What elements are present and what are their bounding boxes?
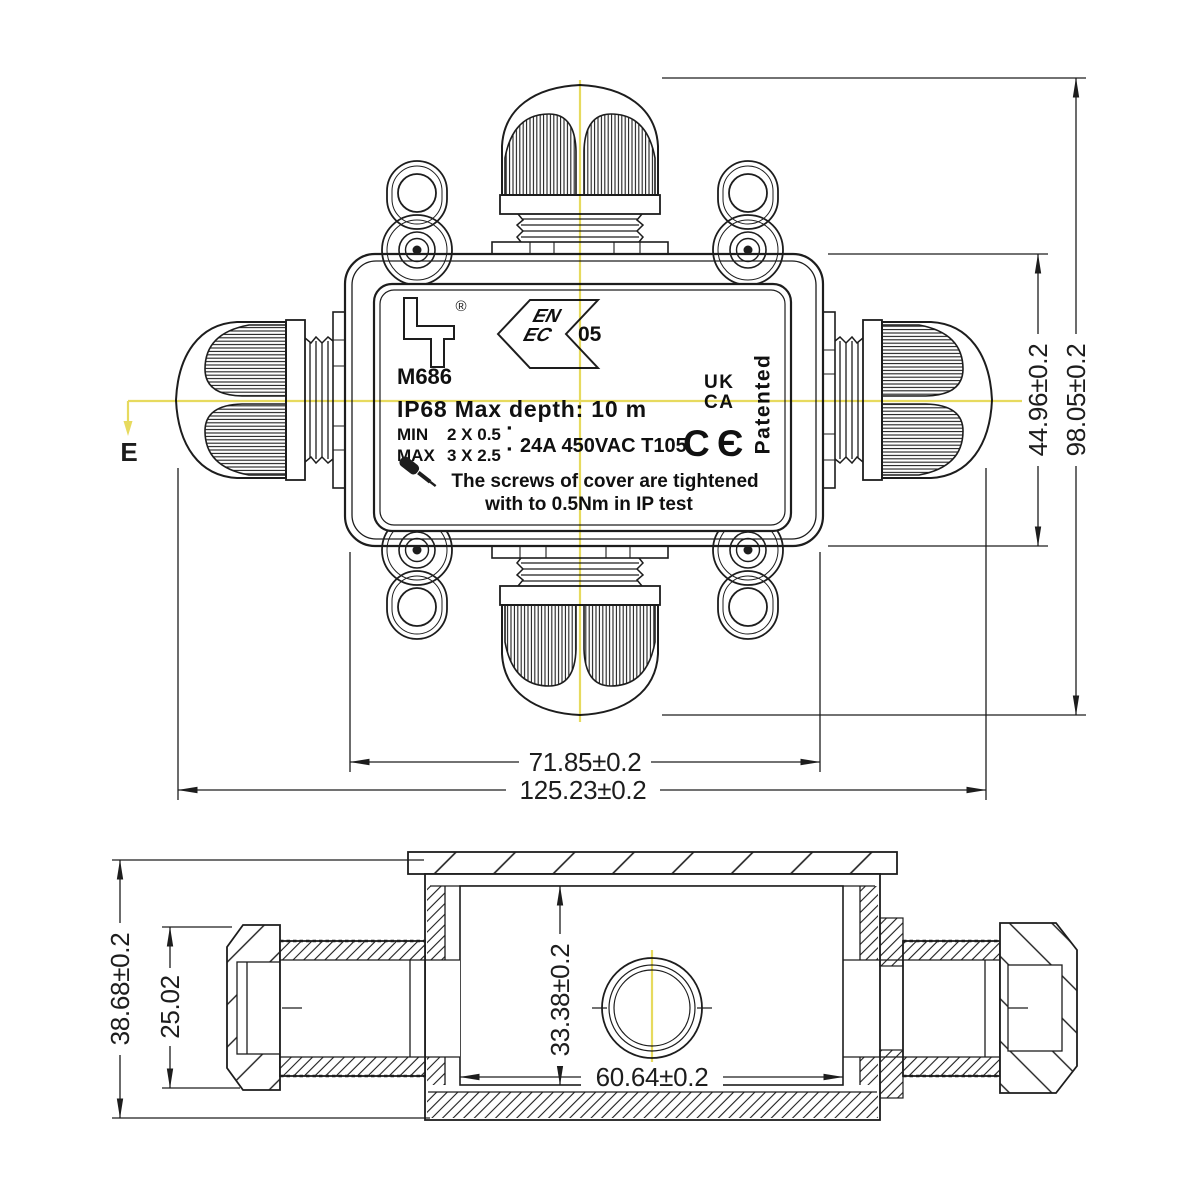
model-text: M686 (397, 364, 452, 389)
ukca-mark: UK CA (704, 372, 734, 413)
ce-e-glyph: Є (717, 423, 743, 464)
drawing-svg: ® EN EC 05 M686 IP68 Max depth: 10 m MIN… (0, 0, 1200, 1200)
warning-text-line2: with to 0.5Nm in IP test (484, 494, 693, 515)
dim-cavity-height: 33.38±0.2 (545, 944, 575, 1057)
dim-side-overall-height: 38.68±0.2 (105, 933, 135, 1046)
side-gland-right (880, 918, 1077, 1098)
ukca-uk-text: UK (704, 372, 734, 393)
dim-overall-height: 98.05±0.2 (1061, 344, 1091, 457)
dim-cavity-width: 60.64±0.2 (596, 1062, 709, 1092)
min-value: 2 X 0.5 (447, 425, 501, 444)
dim-box-width: 71.85±0.2 (529, 747, 642, 777)
dim-side-gland-height: 25.02 (155, 975, 185, 1039)
side-gland-left (227, 925, 425, 1090)
datum-arrow-icon (124, 421, 133, 436)
datum-label: E (120, 437, 137, 467)
registered-mark: ® (455, 298, 466, 315)
dim-overall-width: 125.23±0.2 (520, 775, 647, 805)
warning-text-line1: The screws of cover are tightened (451, 471, 758, 492)
electrical-rating-text: 24A 450VAC T105 (520, 435, 687, 457)
ukca-ca-text: CA (704, 392, 734, 413)
patented-text: Patented (752, 354, 775, 455)
ce-c-glyph: C (683, 423, 710, 464)
min-unit-square: ▪ (507, 420, 512, 435)
max-unit-square: ▪ (507, 441, 512, 456)
dim-box-height: 44.96±0.2 (1023, 344, 1053, 457)
bottom-wall-section (427, 1092, 878, 1118)
enec-number: 05 (578, 323, 602, 346)
max-value: 3 X 2.5 (447, 446, 501, 465)
min-label: MIN (397, 425, 428, 444)
cover-section (408, 852, 897, 874)
label-plate: ® EN EC 05 M686 IP68 Max depth: 10 m MIN… (374, 284, 791, 531)
junction-box-technical-drawing: ® EN EC 05 M686 IP68 Max depth: 10 m MIN… (0, 0, 1200, 1200)
